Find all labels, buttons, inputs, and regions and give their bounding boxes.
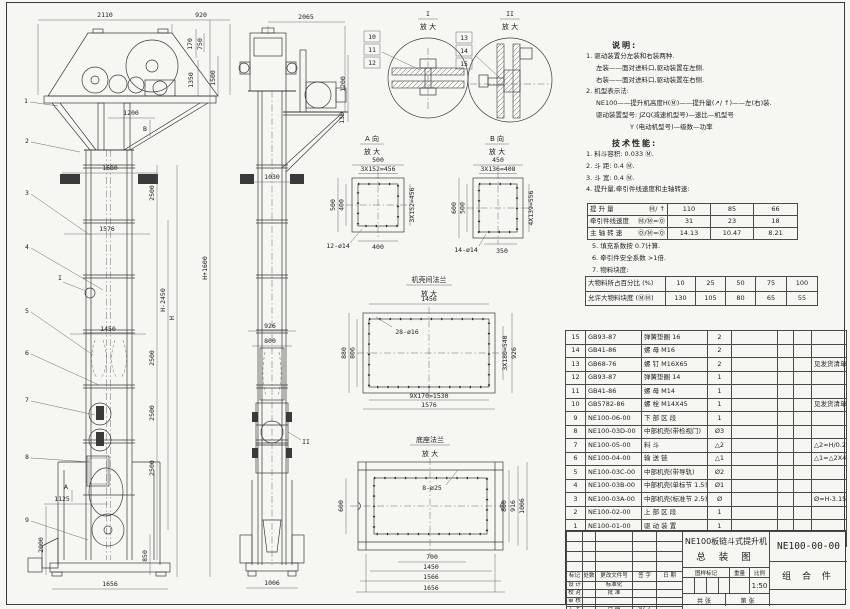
drawing-title: NE100板链斗式提升机 总 装 图 (682, 531, 769, 567)
size-value: 65 (756, 291, 787, 306)
bom-cell (732, 493, 778, 507)
perf-value: 23 (711, 216, 754, 228)
size-value: 25 (696, 277, 726, 292)
view-b-title: B 向 (490, 134, 504, 143)
balloon-5: 5 (25, 307, 29, 315)
balloon-9: 9 (25, 516, 29, 524)
bom-cell (794, 506, 812, 520)
base-dim-1450: 1450 (423, 563, 439, 571)
mark-box (694, 577, 706, 593)
size-value: 10 (666, 277, 696, 292)
balloon-14: 14 (460, 47, 468, 55)
bom-cell: 螺 栓 M14X45 (642, 398, 708, 412)
bom-cell: NE100-04-00 (586, 452, 642, 466)
bom-cell (778, 371, 794, 385)
view-a-sub: 放 大 (364, 147, 380, 156)
bom-cell (812, 506, 847, 520)
bom-cell (778, 506, 794, 520)
dim-1656: 1656 (102, 580, 118, 588)
bom-row: 5NE100-03C-00中部机壳(带导轨)Ø2 (566, 466, 847, 480)
bom-cell (732, 398, 778, 412)
detail-view-i: I 放 大 10 11 12 (364, 10, 468, 118)
bom-cell: 3 (566, 493, 586, 507)
spec-line: 4. 提升量,牵引件线速度和主轴转速: (586, 184, 844, 196)
spec-line: 6. 牵引件安全系数 >1倍. (592, 253, 842, 265)
perf-value: 110 (668, 204, 711, 216)
flange-dim-right1: 3X180=540 (501, 335, 509, 370)
bom-cell (812, 425, 847, 439)
dim-170: 170 (186, 38, 194, 50)
notes-heading: 说明: (612, 40, 844, 51)
bom-cell (778, 479, 794, 493)
bom-cell (778, 398, 794, 412)
bom-cell (778, 344, 794, 358)
note-line: NE100——提升机高度H(Ⓜ)——提升量(↗/ ↑)——左(右)装. (596, 98, 844, 110)
bom-row: 10GB5782-86螺 栓 M14X451见发货清单 (566, 398, 847, 412)
mark-label: 图样标记 (682, 567, 729, 577)
bom-cell (732, 331, 778, 345)
bom-cell: 1 (708, 385, 732, 399)
dim-1030: 1030 (264, 173, 280, 181)
bom-cell (732, 479, 778, 493)
perf-value: 18 (754, 216, 798, 228)
note-line: 1. 驱动装置分左装和右装两种. (586, 51, 844, 63)
bom-cell: 5 (566, 466, 586, 480)
dim-926-side: 926 (264, 322, 276, 330)
sheet-number: 第 张 (725, 593, 769, 606)
rev-header: 更改文件号 (596, 572, 633, 582)
bom-cell (794, 344, 812, 358)
rev-header: 签 字 (633, 572, 657, 582)
bom-cell: 2 (708, 344, 732, 358)
bom-cell: 中部机壳(带导轨) (642, 466, 708, 480)
dim-2500: 2500 (148, 350, 156, 366)
bom-cell: Ø2 (708, 466, 732, 480)
detail-ii-title: II (506, 10, 514, 18)
perf-value: 8.21 (754, 228, 798, 240)
bom-cell (812, 479, 847, 493)
bom-cell (812, 412, 847, 426)
balloon-6: 6 (25, 349, 29, 357)
flange-title: 机壳间法兰 (412, 275, 447, 284)
bom-cell: NE100-03C-00 (586, 466, 642, 480)
table-row: 允许大物料块度 (ⓂⓂ) 130 105 80 65 55 (586, 291, 818, 306)
view-a-dim-top1: 500 (372, 156, 384, 164)
base-title: 底座法兰 (416, 435, 444, 444)
bom-row: 3NE100-03A-00中部机壳(标准节 2.5Ⓜ)ØØ=H-3.15/2.5 (566, 493, 847, 507)
bom-cell (794, 412, 812, 426)
bom-cell (794, 371, 812, 385)
bom-cell: NE100-03B-00 (586, 479, 642, 493)
specs-extra: 5. 填充系数按 0.7计算. 6. 牵引件安全系数 >1倍. 7. 物料块度: (592, 241, 842, 276)
bom-cell (732, 452, 778, 466)
flange-dim-bottom1: 9X170=1530 (409, 392, 448, 400)
view-b-dim-top1: 450 (492, 156, 504, 164)
table-row: 提 升 量Ⓜ/ ↑ 110 85 66 (588, 204, 798, 216)
bom-cell: 2 (566, 506, 586, 520)
perf-unit: Ⓜ/ ↑ (649, 206, 665, 213)
bom-cell: 螺 母 M16 (642, 344, 708, 358)
bom-cell: 中部机壳(单标节 1.5Ⓜ,1Ⓜ) (642, 479, 708, 493)
revision-table: 标记 处数 更改文件号 签 字 日 期 设 计标准化 校 对批 准 审 核 工 … (566, 531, 683, 609)
bom-cell (778, 385, 794, 399)
dim-1006: 1006 (264, 579, 280, 587)
bom-cell (732, 506, 778, 520)
view-a-dim-top2: 3X152=456 (360, 165, 395, 173)
bom-cell: 15 (566, 331, 586, 345)
bom-cell: 中部机壳(带检视门) (642, 425, 708, 439)
note-line: Y (电动机型号)—级数—功率 (630, 122, 844, 134)
dim-1500: 1500 (209, 70, 217, 86)
title-block: 标记 处数 更改文件号 签 字 日 期 设 计标准化 校 对批 准 审 核 工 … (565, 530, 846, 605)
view-a-dim-right: 3X152=456 (408, 187, 416, 222)
marker-i: I (58, 274, 62, 282)
bom-cell (794, 466, 812, 480)
dim-850: 850 (141, 550, 149, 562)
bom-cell (778, 439, 794, 453)
dim-920: 920 (195, 11, 207, 19)
bom-cell: 1 (708, 398, 732, 412)
balloon-2: 2 (25, 137, 29, 145)
dim-2500: 2500 (148, 185, 156, 201)
bom-row: 4NE100-03B-00中部机壳(单标节 1.5Ⓜ,1Ⓜ)Ø1 (566, 479, 847, 493)
base-dim-left: 600 (337, 500, 345, 512)
bom-cell: 见发货清单 (812, 358, 847, 372)
bom-cell (732, 425, 778, 439)
bom-cell (794, 331, 812, 345)
perf-label: 牵引件线速度 (590, 218, 629, 225)
balloon-4: 4 (25, 243, 29, 251)
balloon-1: 1 (24, 97, 28, 105)
bom-cell: 10 (566, 398, 586, 412)
weight-value (729, 577, 749, 593)
bom-cell: △1 (708, 452, 732, 466)
bom-cell (794, 493, 812, 507)
bom-cell: 见发货清单 (812, 398, 847, 412)
bom-cell: Ø=H-3.15/2.5 (812, 493, 847, 507)
bom-cell: 12 (566, 371, 586, 385)
drawing-title-line2: 总 装 图 (696, 549, 756, 563)
bom-cell: GB93-87 (586, 371, 642, 385)
dim-2500: 2500 (148, 405, 156, 421)
bom-cell (794, 452, 812, 466)
marker-b: B (143, 125, 147, 133)
dim-h-minus-2450: H-2450 (159, 288, 167, 312)
dim-800-side: 800 (264, 337, 276, 345)
base-holes: 8-ø25 (422, 484, 442, 492)
bom-cell: 1 (708, 412, 732, 426)
bom-cell (732, 344, 778, 358)
rev-header: 标记 (567, 572, 583, 582)
dim-1200-side: 1200 (339, 76, 347, 92)
base-dim-700: 700 (426, 553, 438, 561)
table-row: 大物料所占百分比 (%) 10 25 50 75 100 (586, 277, 818, 292)
bom-cell (794, 358, 812, 372)
balloon-7: 7 (25, 396, 29, 404)
bom-row: 13GB68-76螺 钉 M16X652见发货清单 (566, 358, 847, 372)
size-value: 105 (696, 291, 726, 306)
bom-cell (778, 358, 794, 372)
view-a: A 向 放 大 500 3X152=456 500 400 3X152=456 … (326, 134, 416, 251)
base-dim-right2: 916 (509, 500, 517, 512)
sheet-total: 共 张 (682, 593, 725, 606)
bom-cell: 6 (566, 452, 586, 466)
note-line: 驱动装置型号: JZQ(减速机型号)—速比—机型号 (596, 110, 844, 122)
dim-h-plus-1600: H+1600 (201, 256, 209, 280)
bom-cell (778, 493, 794, 507)
bom-cell (812, 371, 847, 385)
view-b-dim-left2: 500 (459, 202, 467, 214)
scale-value: 1:50 (749, 577, 769, 593)
bom-cell: 下 部 区 段 (642, 412, 708, 426)
bom-cell: 14 (566, 344, 586, 358)
base-dim-1566: 1566 (423, 573, 439, 581)
role-label: 审 核 (567, 598, 583, 606)
dim-h: H (168, 316, 176, 320)
bom-cell: 弹簧垫圈 14 (642, 371, 708, 385)
perf-unit: Ⓜ/Ⓜ=Ⓞ (638, 218, 665, 225)
balloon-13: 13 (460, 34, 468, 42)
detail-ii-sub: 放 大 (502, 22, 518, 31)
dim-1576: 1576 (99, 225, 115, 233)
perf-unit: Ⓞ/Ⓜ=Ⓞ (638, 230, 665, 237)
perf-value: 31 (668, 216, 711, 228)
note-line: 2. 机型表示法: (586, 86, 844, 98)
bom-cell (732, 466, 778, 480)
bom-cell (794, 398, 812, 412)
bom-cell (812, 466, 847, 480)
bom-cell: NE100-03D-00 (586, 425, 642, 439)
balloon-12: 12 (368, 59, 376, 67)
flange-holes: 28-ø16 (395, 328, 419, 336)
spec-line: 5. 填充系数按 0.7计算. (592, 241, 842, 253)
assembly-label: 组 合 件 (769, 561, 847, 589)
bom-cell: GB41-86 (586, 385, 642, 399)
bom-cell: 7 (566, 439, 586, 453)
flange-dim-bottom2: 1576 (421, 401, 437, 409)
bom-cell: 料 斗 (642, 439, 708, 453)
bom-cell: NE100-02-00 (586, 506, 642, 520)
balloon-3: 3 (25, 189, 29, 197)
role-label: 批 准 (596, 590, 633, 598)
bom-cell: Ø3 (708, 425, 732, 439)
specs-heading: 技术性能: (612, 138, 844, 149)
bom-row: 7NE100-05-00料 斗△2△2=H/0.2+5.75 (566, 439, 847, 453)
bom-cell: △1=△2X4 (812, 452, 847, 466)
mark-box (718, 577, 729, 593)
drawing-title-line1: NE100板链斗式提升机 (685, 536, 767, 547)
bom-cell (778, 466, 794, 480)
spec-line: 1. 料斗容积: 0.033 Ⓜ. (586, 149, 844, 161)
bom-row: 6NE100-04-00输 送 链△1△1=△2X4 (566, 452, 847, 466)
role-label: 标准化 (596, 582, 633, 590)
bom-cell: GB5782-86 (586, 398, 642, 412)
bom-cell: 上 部 区 段 (642, 506, 708, 520)
dim-1680: 1680 (102, 164, 118, 172)
casing-flange-view: 机壳间法兰 放 大 1456 28-ø16 880 806 3X180=540 … (340, 275, 518, 409)
bom-row: 14GB41-86螺 母 M162 (566, 344, 847, 358)
perf-value: 66 (754, 204, 798, 216)
side-view (239, 28, 348, 576)
detail-i-title: I (426, 10, 430, 18)
side-view-dimensions: 2065 1200 130 1030 926 800 II 1006 (246, 13, 348, 588)
marker-ii: II (302, 438, 310, 446)
bom-cell: GB41-86 (586, 344, 642, 358)
scale-label: 比例 (749, 567, 769, 577)
bom-cell (778, 412, 794, 426)
bom-cell: NE100-05-00 (586, 439, 642, 453)
size-value: 75 (756, 277, 787, 292)
engineering-drawing-sheet: { "colors": {"paper":"#f6f6f2","line":"#… (0, 0, 850, 609)
bom-cell: 4 (566, 479, 586, 493)
bom-cell: 螺 母 M14 (642, 385, 708, 399)
view-b: B 向 放 大 450 3X136=408 600 500 4X139=556 … (450, 134, 535, 255)
dim-1200: 1200 (123, 109, 139, 117)
bom-cell (732, 358, 778, 372)
bom-cell: NE100-06-00 (586, 412, 642, 426)
spec-line: 7. 物料块度: (592, 265, 842, 277)
bom-cell (778, 452, 794, 466)
bom-cell: 弹簧垫圈 16 (642, 331, 708, 345)
bom-cell (732, 371, 778, 385)
rev-header: 处数 (583, 572, 596, 582)
bom-cell (794, 425, 812, 439)
view-a-dim-left2: 400 (338, 199, 346, 211)
size-value: 55 (787, 291, 818, 306)
note-line: 左装——面对进料口,驱动装置在左侧. (596, 63, 844, 75)
bom-cell: 2 (708, 358, 732, 372)
mark-box (682, 577, 694, 593)
view-b-holes: 14-ø14 (454, 246, 478, 254)
bom-cell: 8 (566, 425, 586, 439)
role-label: 校 对 (567, 590, 583, 598)
bom-cell: Ø1 (708, 479, 732, 493)
base-dim-right3: 1006 (518, 498, 526, 514)
bom-cell: 中部机壳(标准节 2.5Ⓜ) (642, 493, 708, 507)
detail-i-sub: 放 大 (420, 22, 436, 31)
perf-value: 85 (711, 204, 754, 216)
bom-cell (812, 385, 847, 399)
flange-dim-left2: 806 (349, 347, 357, 359)
table-row: 主 轴 转 速Ⓞ/Ⓜ=Ⓞ 14.13 10.47 8.21 (588, 228, 798, 240)
bom-cell: GB68-76 (586, 358, 642, 372)
bom-row: 12GB93-87弹簧垫圈 141 (566, 371, 847, 385)
lump-size-table: 大物料所占百分比 (%) 10 25 50 75 100 允许大物料块度 (ⓂⓂ… (585, 276, 818, 306)
bom-row: 11GB41-86螺 母 M141 (566, 385, 847, 399)
bom-cell: 13 (566, 358, 586, 372)
balloon-8: 8 (25, 453, 29, 461)
bom-cell (732, 385, 778, 399)
performance-table: 提 升 量Ⓜ/ ↑ 110 85 66 牵引件线速度Ⓜ/Ⓜ=Ⓞ 31 23 18… (587, 203, 798, 240)
dim-2000: 2000 (37, 537, 45, 553)
dim-1350: 1350 (187, 72, 195, 88)
view-b-sub: 放 大 (489, 147, 505, 156)
bom-cell (778, 425, 794, 439)
notes-block: 说明: 1. 驱动装置分左装和右装两种. 左装——面对进料口,驱动装置在左侧. … (586, 40, 844, 134)
table-row: 牵引件线速度Ⓜ/Ⓜ=Ⓞ 31 23 18 (588, 216, 798, 228)
base-dim-1656: 1656 (423, 584, 439, 592)
view-a-holes: 12-ø14 (326, 242, 350, 250)
bom-cell (778, 331, 794, 345)
rev-header: 日 期 (657, 572, 683, 582)
base-dim-right1: 800 (500, 500, 508, 512)
bom-cell (812, 331, 847, 345)
spec-line: 2. 斗 距: 0.4 Ⓜ. (586, 161, 844, 173)
rev-header-row: 标记 处数 更改文件号 签 字 日 期 (567, 572, 683, 582)
bom-cell (732, 439, 778, 453)
bom-cell: 螺 钉 M16X65 (642, 358, 708, 372)
bom-cell: 2 (708, 331, 732, 345)
perf-value: 10.47 (711, 228, 754, 240)
title-block-empty-cell (769, 589, 847, 606)
bom-cell: GB93-87 (586, 331, 642, 345)
dim-2500: 2500 (148, 460, 156, 476)
flange-dim-right2: 926 (510, 347, 518, 359)
dim-1125: 1125 (54, 495, 70, 503)
note-line: 右装——面对进料口,驱动装置在右侧. (596, 75, 844, 87)
dim-2110: 2110 (97, 11, 113, 19)
drawing-number: NE100-00-00 (769, 531, 847, 561)
detail-view-ii: II 放 大 13 14 15 (456, 10, 552, 122)
dim-1450: 1450 (100, 325, 116, 333)
bom-cell: △2 (708, 439, 732, 453)
specs-block: 技术性能: 1. 料斗容积: 0.033 Ⓜ. 2. 斗 距: 0.4 Ⓜ. 3… (586, 138, 844, 196)
balloon-10: 10 (368, 33, 376, 41)
bom-cell: 9 (566, 412, 586, 426)
perf-label: 提 升 量 (590, 206, 614, 213)
size-value: 100 (787, 277, 818, 292)
base-flange-view: 底座法兰 放 大 8-ø25 600 800 916 1006 700 1450… (337, 435, 527, 592)
bom-cell (732, 412, 778, 426)
spec-line: 3. 斗 宽: 0.4 Ⓜ. (586, 173, 844, 185)
view-a-dim-bottom: 400 (372, 243, 384, 251)
bom-cell: 输 送 链 (642, 452, 708, 466)
bom-cell: 11 (566, 385, 586, 399)
bom-table: 15GB93-87弹簧垫圈 16214GB41-86螺 母 M16213GB68… (565, 330, 847, 547)
dim-130: 130 (338, 112, 346, 124)
bom-row: 8NE100-03D-00中部机壳(带检视门)Ø3 (566, 425, 847, 439)
balloon-15: 15 (460, 60, 468, 68)
size-value: 80 (726, 291, 756, 306)
view-b-dim-right: 4X139=556 (527, 190, 535, 225)
bom-cell: 1 (708, 371, 732, 385)
marker-a: A (64, 483, 68, 491)
size-label: 大物料所占百分比 (%) (586, 277, 666, 292)
view-b-dim-top2: 3X136=408 (480, 165, 515, 173)
bom-row: 15GB93-87弹簧垫圈 162 (566, 331, 847, 345)
bom-cell: 1 (708, 506, 732, 520)
bom-cell (794, 479, 812, 493)
weight-label: 重量 (729, 567, 749, 577)
role-label: 设 计 (567, 582, 583, 590)
base-sub: 放 大 (422, 449, 438, 458)
role-label (596, 598, 633, 606)
view-b-dim-left1: 600 (450, 202, 458, 214)
bom-cell: NE100-03A-00 (586, 493, 642, 507)
view-b-dim-bottom: 350 (496, 247, 508, 255)
perf-value: 14.13 (668, 228, 711, 240)
dim-2065: 2065 (298, 13, 314, 21)
bom-cell (794, 385, 812, 399)
perf-label: 主 轴 转 速 (590, 230, 622, 237)
bom-cell: △2=H/0.2+5.75 (812, 439, 847, 453)
size-value: 130 (666, 291, 696, 306)
bom-cell: Ø (708, 493, 732, 507)
flange-dim-left1: 880 (340, 347, 348, 359)
view-a-dim-left1: 500 (329, 199, 337, 211)
dim-750: 750 (196, 38, 204, 50)
bom-row: 2NE100-02-00上 部 区 段1 (566, 506, 847, 520)
